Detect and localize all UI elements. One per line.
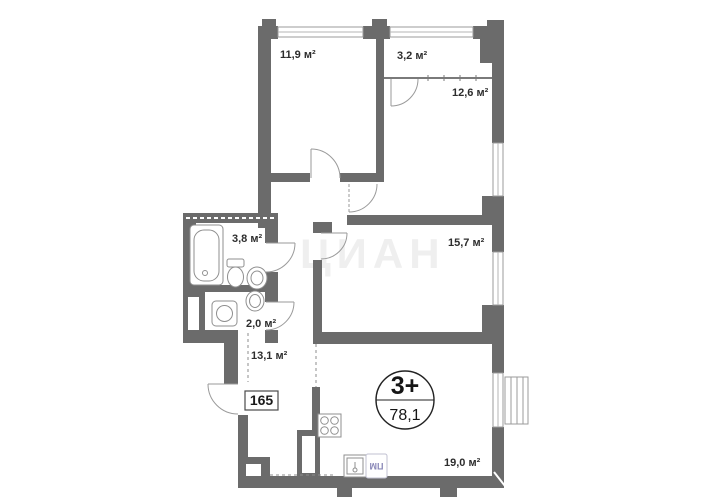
duct-wc [188, 297, 199, 330]
sink-icon [247, 267, 267, 289]
dishwasher-label: ПМ [370, 461, 384, 471]
washing-machine-icon [212, 301, 237, 326]
unit-number: 165 [250, 392, 274, 408]
floor-plan-drawing: ЦИАН [0, 0, 710, 500]
wall-corner [313, 222, 332, 233]
wall-stub [337, 488, 352, 497]
wall-right [492, 196, 504, 252]
room-label-bedroom-12-6: 12,6 м² [452, 87, 489, 99]
unit-number-box: 165 [245, 391, 278, 410]
wc-sink-icon [246, 291, 264, 311]
wall-bath-right [265, 330, 278, 343]
entrance-door [208, 384, 238, 414]
bathroom-door [266, 243, 295, 272]
closet-3-2-door [391, 79, 418, 106]
wall-bump [482, 305, 492, 334]
room-label-bedroom-15-7: 15,7 м² [448, 237, 485, 249]
toilet-icon [227, 259, 244, 287]
wall-notch [246, 464, 261, 476]
badge-total-area: 78,1 [389, 407, 420, 424]
ac-basket [505, 377, 528, 424]
closet-partition [384, 75, 492, 81]
wall-entry [224, 343, 238, 384]
room-label-closet-3-2: 3,2 м² [397, 50, 427, 62]
wall-right [492, 22, 504, 143]
wall-wc-bottom [183, 330, 238, 343]
floor-plan-page: ЦИАН [0, 0, 710, 500]
room-label-kitchen-19-0: 19,0 м² [444, 457, 481, 469]
stove-icon [318, 414, 341, 437]
wall-right [492, 305, 504, 373]
room-11-9-door [311, 149, 340, 178]
kitchen-sink-icon [344, 455, 366, 477]
wall-15-7-top [347, 215, 492, 225]
wall-bath-right [265, 223, 278, 243]
room-12-6-door [349, 184, 377, 212]
wall-corridor [340, 173, 384, 182]
room-label-bath-3-8: 3,8 м² [232, 233, 262, 245]
apartment-badge: 3+ 78,1 [376, 371, 434, 429]
wall-left [258, 26, 271, 228]
room-label-hall-13-1: 13,1 м² [251, 350, 288, 362]
bathtub-icon [190, 225, 223, 285]
wall-corridor [258, 173, 310, 182]
wall-stub [440, 488, 457, 497]
wall-cap [262, 19, 276, 27]
wall-15-7-bottom [313, 332, 492, 344]
room-label-wc-2-0: 2,0 м² [246, 318, 276, 330]
wall-cap [372, 19, 387, 27]
wall-bump [480, 32, 492, 63]
wall-bump [482, 196, 492, 215]
room-label-living-11-9: 11,9 м² [280, 49, 316, 61]
wall-divider [376, 26, 384, 182]
badge-room-type: 3+ [391, 372, 420, 400]
duct-kitchen [302, 436, 315, 473]
wall-15-7-left [313, 260, 322, 344]
